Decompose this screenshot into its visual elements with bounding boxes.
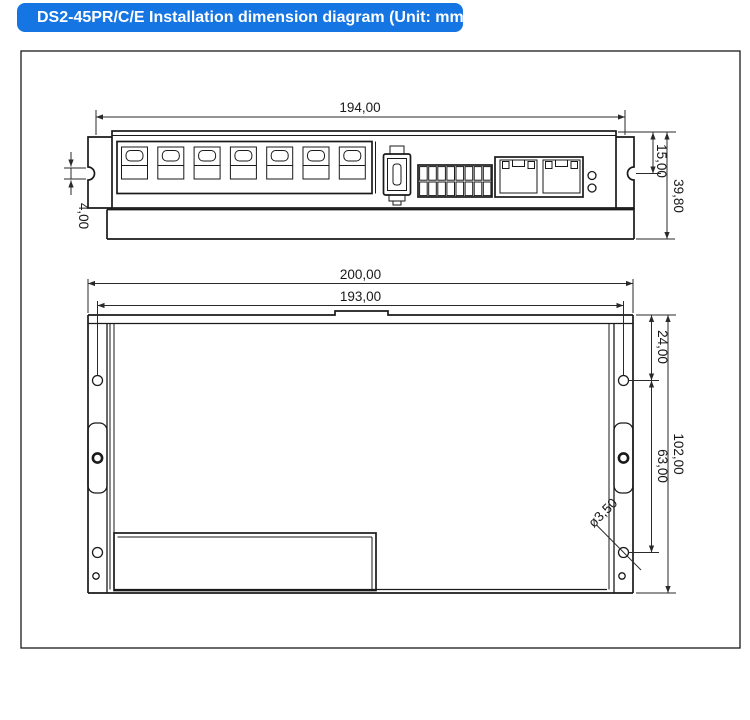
- mounting-holes-right: [614, 376, 633, 580]
- bottom-sub-panel: [114, 533, 376, 591]
- top-view-drawing: 194,00 4,00 15,00 39,80: [64, 100, 686, 239]
- dim-hole-diameter-label: ø3,50: [585, 495, 620, 530]
- hole-diameter-leader: [597, 525, 642, 570]
- terminal-block: [117, 142, 376, 194]
- led-indicators: [588, 172, 596, 193]
- dim-outer-width-label: 200,00: [340, 267, 381, 282]
- dim-body-height-label: 102,00: [671, 433, 686, 474]
- dim-inner-width-label: 193,00: [340, 289, 381, 304]
- dim-notch-label: 4,00: [76, 203, 91, 229]
- dim-profile-height-label: 39,80: [671, 179, 686, 213]
- device-body-outline: [88, 311, 633, 315]
- right-mounting-ear: [616, 137, 634, 208]
- pin-header-connector: [418, 165, 492, 197]
- rj45-ports: [495, 157, 583, 197]
- dim-top-width-label: 194,00: [339, 100, 380, 115]
- mounting-holes-left: [88, 376, 107, 580]
- bottom-view-dimensions: 200,00 193,00 24,00 63,00 102,00 ø3,50: [88, 267, 686, 593]
- usb-connector: [384, 146, 411, 205]
- left-mounting-ear: [88, 137, 112, 208]
- bottom-view-drawing: 200,00 193,00 24,00 63,00 102,00 ø3,50: [88, 267, 686, 593]
- base-plate: [107, 208, 634, 239]
- page: DS2-45PR/C/E Installation dimension diag…: [0, 0, 750, 720]
- dimension-diagram: 194,00 4,00 15,00 39,80: [0, 0, 750, 720]
